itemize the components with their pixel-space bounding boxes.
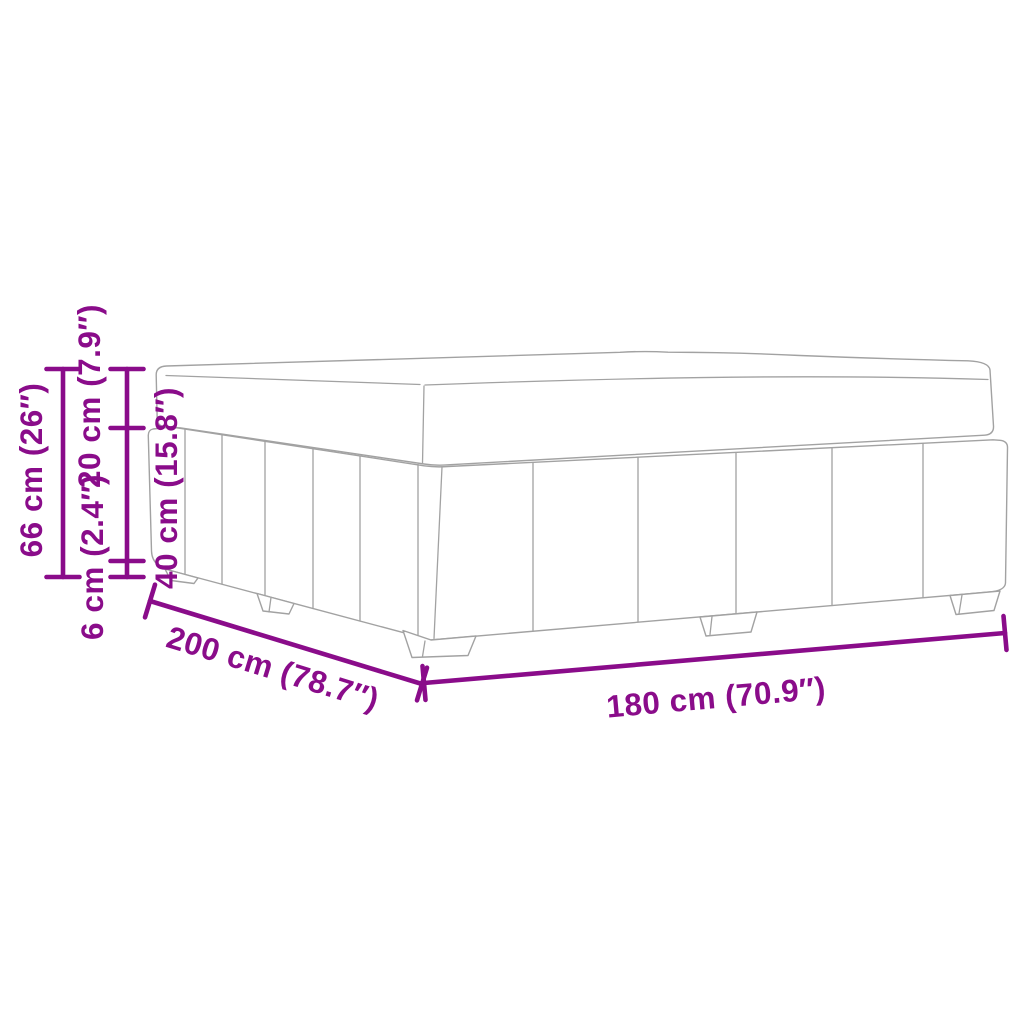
foot-front-right — [950, 591, 1000, 615]
dim-label-length: 200 cm (78.7″) — [163, 619, 384, 718]
product-dimension-diagram: 66 cm (26″) 20 cm (7.9″) 6 cm (2.4″) 40 … — [0, 0, 1024, 1024]
bed-sketch — [148, 352, 1007, 658]
dim-label-feet-height: 6 cm (2.4″) — [74, 474, 110, 640]
dim-label-width: 180 cm (70.9″) — [605, 670, 827, 725]
dimension-line-height-breakdown — [111, 369, 144, 577]
bed-dimension-drawing: 66 cm (26″) 20 cm (7.9″) 6 cm (2.4″) 40 … — [0, 0, 1024, 1024]
dim-label-base-height: 40 cm (15.8″) — [148, 387, 184, 589]
dim-label-total-height: 66 cm (26″) — [13, 383, 49, 558]
dim-label-mattress-height: 20 cm (7.9″) — [71, 304, 107, 488]
foot-front-mid — [700, 612, 757, 636]
